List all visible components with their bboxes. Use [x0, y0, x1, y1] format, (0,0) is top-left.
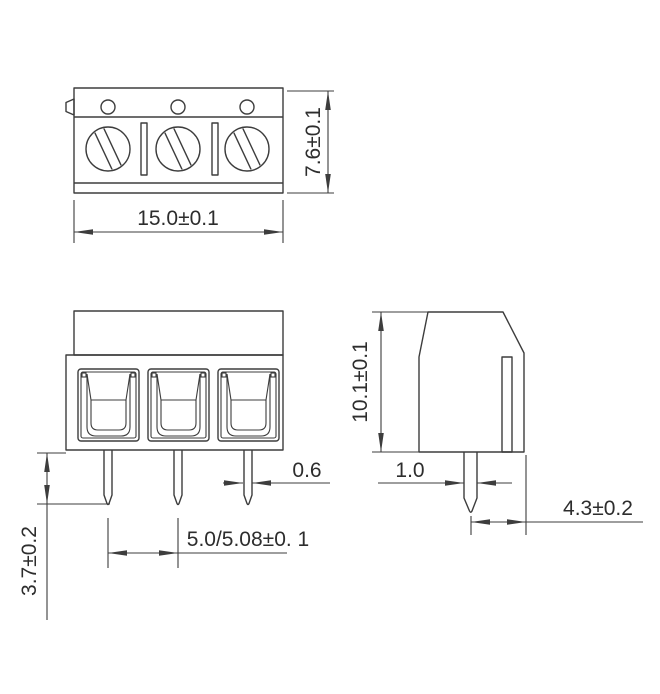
- top-height-label: 7.6±0.1: [302, 107, 325, 177]
- technical-drawing-canvas: 15.0±0.1 7.6±0.1: [0, 0, 660, 694]
- wire-hole-3: [240, 100, 254, 114]
- dimension-side-height: 10.1±0.1: [349, 312, 428, 452]
- dimension-front-pin-width: 0.6: [223, 459, 330, 486]
- divider-slot-1: [141, 123, 147, 175]
- screw-head-3: [225, 127, 269, 171]
- side-view: [419, 312, 524, 512]
- front-view: [66, 311, 283, 505]
- side-height-label: 10.1±0.1: [349, 341, 372, 423]
- wire-hole-2: [171, 100, 185, 114]
- terminal-block-drawing: 15.0±0.1 7.6±0.1: [0, 0, 660, 694]
- wire-window-2: [148, 369, 209, 441]
- side-body-outline: [419, 312, 524, 452]
- side-tab: [66, 99, 74, 115]
- pin-pitch-label: 5.0/5.08±0. 1: [187, 528, 309, 551]
- front-cap-outline: [74, 311, 283, 355]
- side-pin-width-label: 1.0: [395, 459, 424, 482]
- front-pin-width-label: 0.6: [292, 459, 321, 482]
- top-width-label: 15.0±0.1: [137, 207, 219, 230]
- screw-slots: [94, 126, 262, 172]
- screw-head-1: [86, 127, 130, 171]
- dimension-top-height: 7.6±0.1: [287, 91, 334, 193]
- side-slot: [502, 357, 512, 452]
- pin-2: [174, 450, 182, 505]
- top-view-outline: [74, 88, 283, 193]
- pin-to-edge-label: 4.3±0.2: [563, 497, 633, 520]
- screw-head-2: [156, 127, 200, 171]
- side-pin: [464, 452, 477, 512]
- dimension-pin-pitch: 5.0/5.08±0. 1: [108, 518, 309, 568]
- top-view: [66, 88, 283, 193]
- wire-window-3: [218, 369, 279, 441]
- pin-3: [244, 450, 252, 505]
- pin-length-label: 3.7±0.2: [18, 526, 41, 596]
- divider-slot-2: [212, 123, 218, 175]
- dimension-pin-length: 3.7±0.2: [18, 453, 110, 620]
- pin-1: [104, 450, 112, 505]
- wire-hole-1: [101, 100, 115, 114]
- dimension-side-pin-width: 1.0: [378, 459, 512, 486]
- dimension-top-width: 15.0±0.1: [74, 200, 283, 243]
- dimension-pin-to-edge: 4.3±0.2: [471, 455, 643, 535]
- wire-window-1: [78, 369, 139, 441]
